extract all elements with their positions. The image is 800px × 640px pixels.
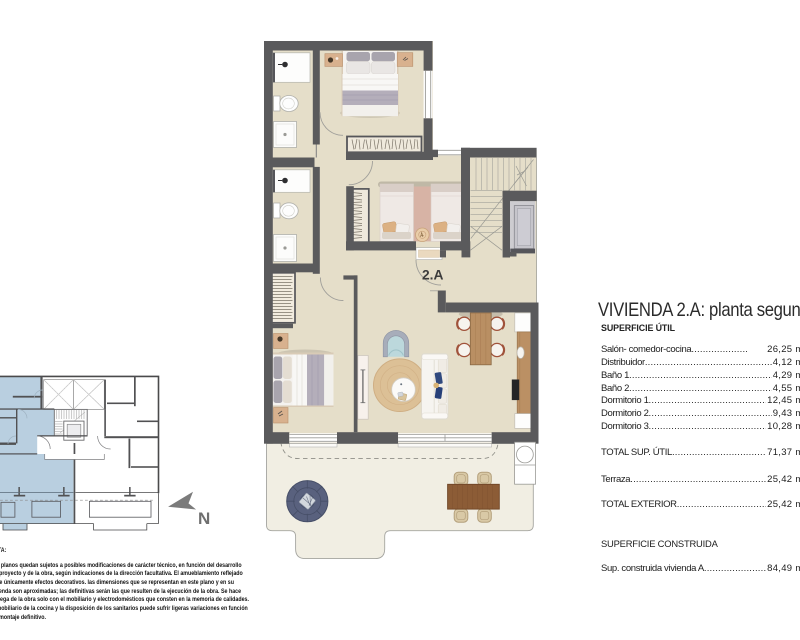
svg-text:N: N: [198, 509, 210, 528]
svg-text:2.A: 2.A: [422, 268, 444, 283]
